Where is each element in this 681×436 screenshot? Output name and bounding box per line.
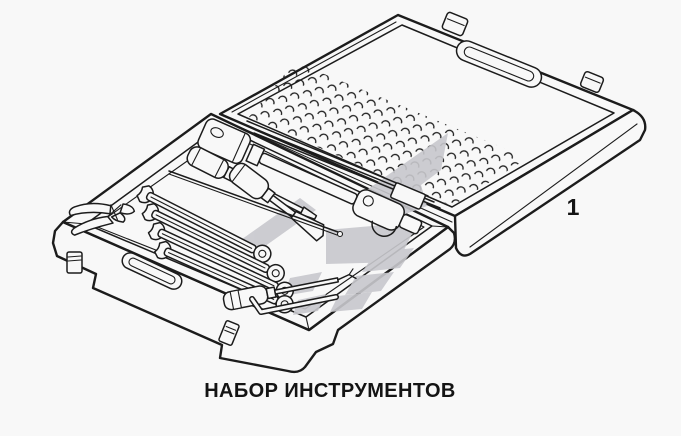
parts-diagram-page: 1 НАБОР ИНСТРУМЕНТОВ: [0, 0, 681, 436]
lid-latch-left: [441, 12, 468, 37]
tray-latch-left: [67, 252, 82, 273]
callout-number: 1: [560, 194, 586, 221]
figure-caption: НАБОР ИНСТРУМЕНТОВ: [0, 380, 660, 403]
